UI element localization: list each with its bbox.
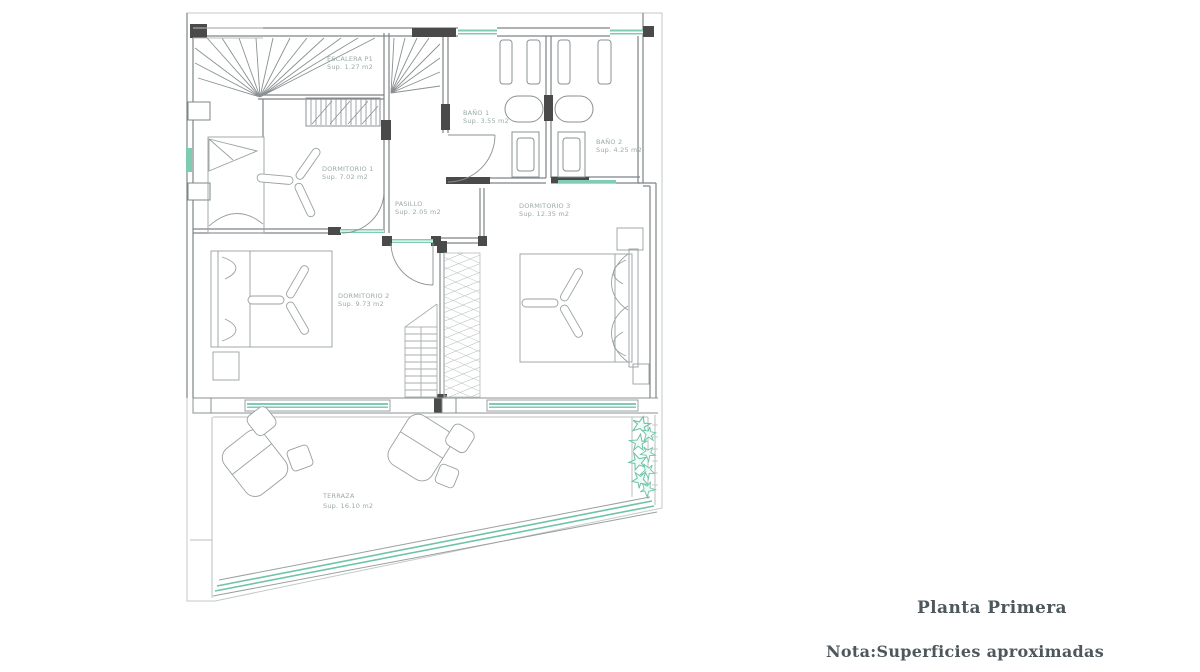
staircase [193, 28, 440, 97]
bathroom1-fixtures [500, 40, 543, 177]
room-label-dormitorio3: DORMITORIO 3 [519, 202, 570, 210]
lounge-chair [383, 400, 476, 494]
door-dormitorio3 [391, 243, 433, 285]
room-area-dormitorio1: Sup. 7.02 m2 [322, 173, 368, 181]
room-area-bano2: Sup. 4.25 m2 [596, 146, 642, 154]
room-label-dormitorio2: DORMITORIO 2 [338, 292, 389, 300]
ceiling-fan-icon [522, 267, 584, 339]
closet-shelves [405, 304, 437, 397]
room-area-dormitorio2: Sup. 9.73 m2 [338, 300, 384, 308]
plan-note: Nota:Superficies aproximadas [826, 642, 1104, 661]
room-area-escalera: Sup. 1.27 m2 [327, 63, 373, 71]
planter-plants [627, 414, 658, 498]
side-table [213, 352, 239, 380]
terrace-railing [215, 501, 654, 591]
door-dormitorio1 [342, 191, 384, 233]
room-label-bano2: BAÑO 2 [596, 137, 622, 146]
bed-dormitorio1 [208, 137, 264, 233]
room-labels: ESCALERA P1 Sup. 1.27 m2 BAÑO 1 Sup. 3.5… [322, 55, 642, 510]
door-bano1 [448, 135, 495, 182]
room-area-terraza: Sup. 16.10 m2 [323, 502, 373, 510]
room-area-bano1: Sup. 3.55 m2 [463, 117, 509, 125]
lounge-chair [210, 404, 314, 501]
room-label-dormitorio1: DORMITORIO 1 [322, 165, 373, 173]
room-area-pasillo: Sup. 2.05 m2 [395, 208, 441, 216]
bathroom2-fixtures [555, 40, 611, 177]
nightstand [617, 228, 643, 250]
floor-plan-svg: ESCALERA P1 Sup. 1.27 m2 BAÑO 1 Sup. 3.5… [0, 0, 1200, 672]
room-label-terraza: TERRAZA [322, 492, 355, 500]
plan-title: Planta Primera [917, 598, 1067, 618]
screenshot-canvas: ESCALERA P1 Sup. 1.27 m2 BAÑO 1 Sup. 3.5… [0, 0, 1200, 672]
room-label-escalera: ESCALERA P1 [327, 55, 373, 63]
ceiling-fan-icon [257, 147, 322, 218]
room-label-bano1: BAÑO 1 [463, 108, 489, 117]
room-label-pasillo: PASILLO [395, 200, 423, 208]
wardrobe-hangers [306, 98, 380, 126]
ceiling-fan-icon [248, 264, 310, 336]
closet-hatch [444, 253, 480, 397]
bed-dormitorio2 [211, 251, 332, 380]
room-area-dormitorio3: Sup. 12.35 m2 [519, 210, 569, 218]
